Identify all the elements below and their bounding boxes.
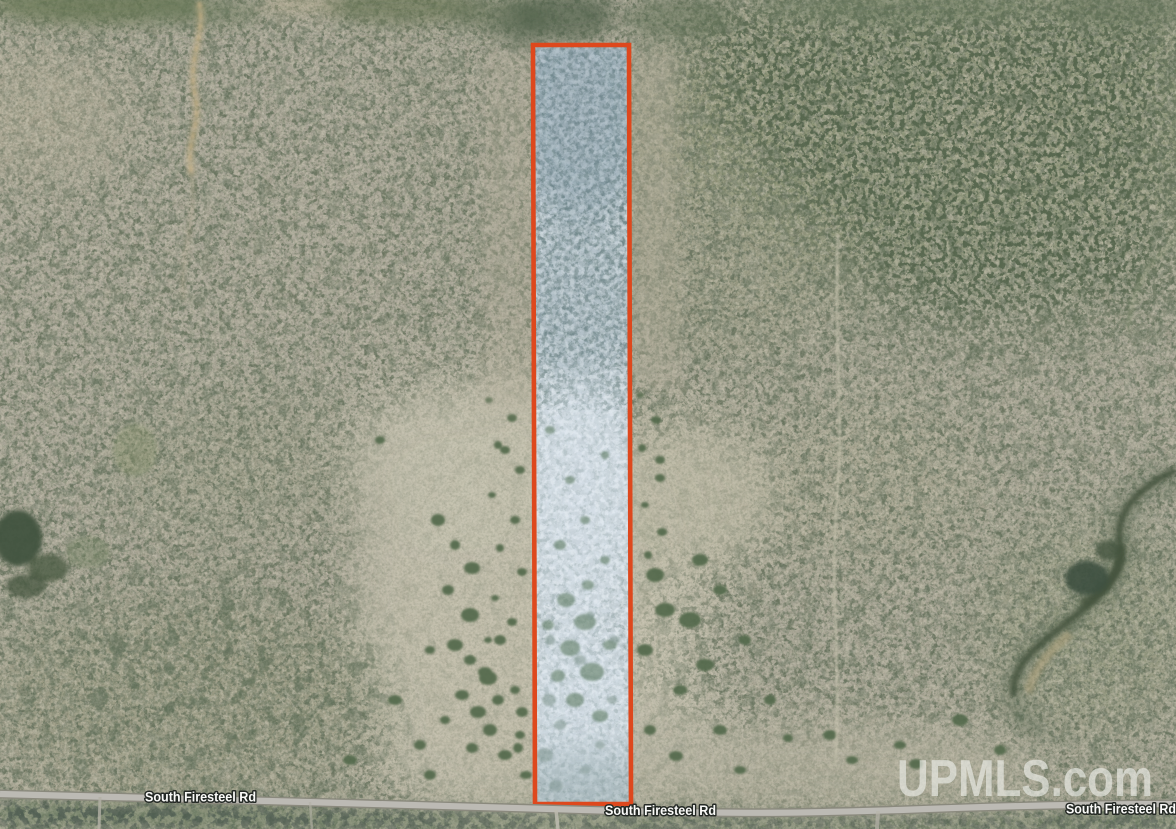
svg-text:South Firesteel Rd: South Firesteel Rd [145, 790, 256, 805]
svg-text:UPMLS.com: UPMLS.com [897, 750, 1153, 808]
svg-text:South Firesteel Rd: South Firesteel Rd [605, 803, 716, 818]
